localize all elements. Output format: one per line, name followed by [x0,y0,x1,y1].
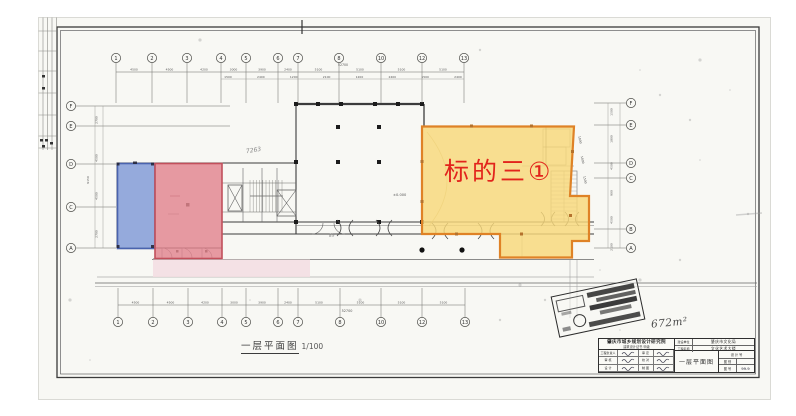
grid-bubble-label: 5 [244,320,247,326]
signature-label: 工程负责人 [599,350,618,357]
grid-bubble-label: E [629,123,632,129]
highlight-region-red [155,164,222,259]
grid-bubble-label: 6 [276,320,279,326]
dim-value: 5100 [356,68,364,72]
dim-value: 2400 [388,75,396,79]
dim-value: 1500 [421,75,429,79]
grid-bubble-label: B [629,227,633,233]
highlight-region-pink [153,260,310,278]
caption-scale: 1/100 [302,342,324,351]
dim-value: 2400 [257,75,265,79]
dim-value: 3900 [258,68,266,72]
grid-bubble-label: C [69,205,73,211]
grid-bubble-label: D [69,162,73,168]
dim-value: 1200 [290,75,298,79]
dim-value: 1500 [224,75,232,79]
grid-bubble-label: 2 [150,56,153,62]
grid-bubble-label: 13 [461,56,467,62]
dim-value: 4500 [167,300,175,304]
grid-bubble-label: 1 [116,320,119,326]
dim-value: 2400 [284,68,292,72]
dim-value: 4500 [95,192,99,200]
stamp-seal-circle [572,313,587,328]
scan-speckle [518,283,521,286]
scan-speckle [638,278,641,281]
caption-title: 一层平面图 [241,341,299,354]
column-dot [419,247,424,252]
signature-scribble [654,350,675,357]
client-value: 肇庆市文化局 [693,339,754,345]
dim-value: 2700 [95,230,99,238]
dim-value: 4500 [610,216,614,224]
signature-scribble [654,365,675,372]
institute-sub: 建筑设计证书 甲级 [599,345,674,349]
dim-value: 3000 [230,68,238,72]
signature-scribble [618,357,639,364]
grid-bubble-label: F [70,104,73,110]
dim-value: 4200 [200,68,208,72]
number-panel: 设 计 号 图 别 图 号 99.9 [719,351,754,372]
signature-scribble [654,357,675,364]
signature-label: 设 计 [599,365,618,372]
grid-bubble-label: 12 [419,56,425,62]
scan-speckle [68,298,71,301]
dim-value: 1200 [356,75,364,79]
scan-speckle [689,119,691,121]
dim-value: 5100 [440,300,448,304]
scan-speckle [619,329,621,331]
dim-value: 4500 [95,154,99,162]
signature-scribble [618,365,639,372]
grid-bubble-label: 8 [337,56,340,62]
title-block-institute-panel: 肇庆市城乡规划设计研究院 建筑设计证书 甲级 工程负责人审 定审 核校 对设 计… [599,339,675,372]
scan-speckle [729,89,731,91]
grid-bubble-label: A [629,246,633,252]
drawing-caption: 一层平面图1/100 [241,334,323,353]
date-value: 99.9 [737,365,754,372]
drawing-title: 一层平面图 [675,351,719,372]
dim-value: 3900 [258,300,266,304]
client-label: 建设单位 [675,339,693,345]
scan-speckle [358,298,361,301]
dim-value: 2400 [284,300,292,304]
dim-value: 4500 [610,162,614,170]
scan-speckle [599,269,601,271]
dim-value: 5100 [315,68,323,72]
grid-bubble-label: 13 [462,320,468,326]
grid-bubble-label: 7 [296,320,299,326]
scan-speckle [544,299,546,301]
column-dot [459,247,464,252]
dim-value: 2700 [95,116,99,124]
design-no-label: 设 计 号 [719,351,754,359]
sheet-type-label: 图 别 [719,359,737,366]
scan-speckle [89,359,91,361]
dim-value: 3000 [230,300,238,304]
dim-value: 5100 [398,68,406,72]
grid-bubble-label: 10 [378,56,384,62]
grid-bubble-label: D [629,161,633,167]
dim-value: 5100 [439,68,447,72]
scan-speckle [198,38,201,41]
grid-bubble-label: 4 [219,56,222,62]
signature-label: 校 对 [639,357,654,364]
scan-speckle [698,58,701,61]
dim-value: 4500 [132,300,140,304]
grid-bubble-label: C [629,176,633,182]
grid-bubble-label: 3 [186,320,189,326]
scan-speckle [679,259,681,261]
scan-speckle [479,49,481,51]
scan-speckle [699,159,701,161]
top-total-dim: 52700 [338,63,348,67]
grid-bubble-label: A [69,246,73,252]
scan-speckle [499,319,501,321]
blueprint-scan: 52700 52700 ±0.000 89 123456781012131234… [0,0,796,416]
scan-speckle [639,69,641,71]
dim-value: 1800 [610,135,614,143]
grid-bubble-label: 5 [244,56,247,62]
scan-speckle [249,299,251,301]
signature-label: 审 定 [639,350,654,357]
grid-bubble-label: 1 [114,56,117,62]
title-block: 肇庆市城乡规划设计研究院 建筑设计证书 甲级 工程负责人审 定审 核校 对设 计… [598,338,755,373]
dim-value: 4200 [201,300,209,304]
grid-bubble-label: 6 [276,56,279,62]
grid-bubble-label: 3 [185,56,188,62]
signature-grid: 工程负责人审 定审 核校 对设 计制 图 [599,350,674,372]
dim-value: 4500 [130,68,138,72]
scan-speckle [659,94,661,96]
signature-label: 审 核 [599,357,618,364]
dim-value: 2100 [610,243,614,251]
dim-value: 900 [610,190,614,196]
dim-value: 2100 [323,75,331,79]
dim-value: 5100 [315,300,323,304]
signature-scribble [618,350,639,357]
grid-bubble-label: 7 [296,56,299,62]
dim-value: 2400 [454,75,462,79]
dim-value: 4500 [166,68,174,72]
dim-value: 9150 [86,176,90,184]
subject-label: 标的三① [444,158,553,185]
grid-bubble-label: F [630,101,633,107]
sheet-type-value [737,359,754,366]
dim-value: 1500 [610,108,614,116]
bottom-total-dim: 52700 [342,309,353,313]
grid-bubble-label: 4 [220,320,223,326]
level-note: ±0.000 [393,193,407,197]
grid-bubble-label: 2 [151,320,154,326]
dim-value: 5100 [398,300,406,304]
grid-bubble-label: 12 [419,320,425,326]
stamp-mark [562,326,571,332]
sheet-no-label: 图 号 [719,365,737,372]
grid-bubble-label: E [69,124,72,130]
project-rows: 建设单位 肇庆市文化局 工程名称 文化艺术大楼 [675,339,754,351]
stamp-mark [561,311,571,316]
grid-bubble-label: 8 [338,320,341,326]
signature-label: 制 图 [639,365,654,372]
pencil-note: 89 [329,233,335,239]
highlight-region-blue [118,164,156,249]
grid-bubble-label: 10 [378,320,384,326]
